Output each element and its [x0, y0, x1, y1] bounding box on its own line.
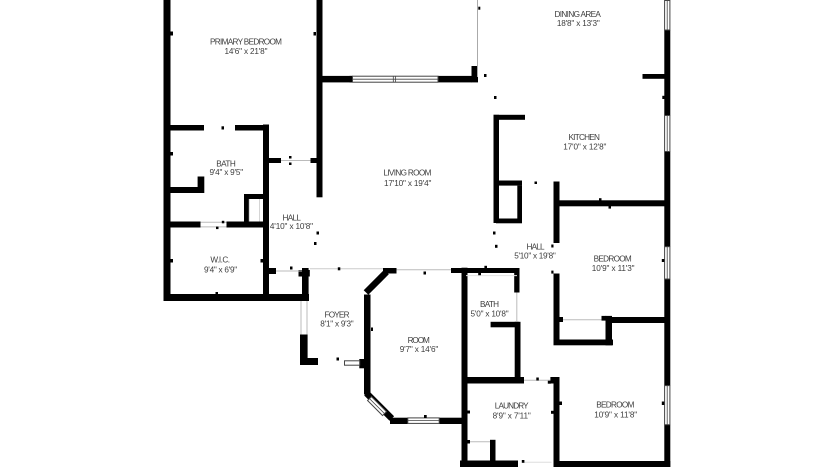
svg-text:BEDROOM: BEDROOM — [594, 255, 632, 264]
svg-text:DINING AREA: DINING AREA — [555, 10, 602, 19]
svg-text:FOYER: FOYER — [325, 311, 350, 320]
svg-text:9'4" x 6'9": 9'4" x 6'9" — [204, 265, 237, 274]
svg-text:W.I.C.: W.I.C. — [210, 255, 230, 264]
svg-text:18'8" x 13'3": 18'8" x 13'3" — [557, 19, 600, 28]
svg-text:LIVING ROOM: LIVING ROOM — [383, 169, 431, 178]
svg-text:9'4" x 9'5": 9'4" x 9'5" — [209, 168, 243, 177]
svg-text:4'10" x 10'8": 4'10" x 10'8" — [270, 222, 313, 231]
svg-text:17'10" x 19'4": 17'10" x 19'4" — [384, 179, 431, 188]
svg-text:BATH: BATH — [480, 300, 499, 309]
svg-text:HALL: HALL — [527, 242, 545, 251]
svg-text:10'9" x 11'8": 10'9" x 11'8" — [594, 411, 637, 420]
svg-text:ROOM: ROOM — [408, 336, 430, 345]
svg-text:14'6" x 21'8": 14'6" x 21'8" — [225, 47, 268, 56]
svg-text:8'1" x 9'3": 8'1" x 9'3" — [320, 320, 353, 329]
svg-text:KITCHEN: KITCHEN — [568, 133, 600, 142]
svg-text:LAUNDRY: LAUNDRY — [495, 402, 529, 411]
svg-text:17'0" x 12'8": 17'0" x 12'8" — [563, 142, 606, 151]
svg-text:PRIMARY BEDROOM: PRIMARY BEDROOM — [210, 37, 282, 46]
svg-text:8'9" x 7'11": 8'9" x 7'11" — [493, 411, 531, 420]
svg-text:BEDROOM: BEDROOM — [596, 400, 634, 409]
svg-text:5'0" x 10'8": 5'0" x 10'8" — [471, 310, 509, 319]
svg-text:9'7" x 14'6": 9'7" x 14'6" — [400, 345, 439, 354]
svg-text:10'9" x 11'3": 10'9" x 11'3" — [592, 264, 635, 273]
svg-text:5'10" x 19'8": 5'10" x 19'8" — [514, 252, 556, 261]
